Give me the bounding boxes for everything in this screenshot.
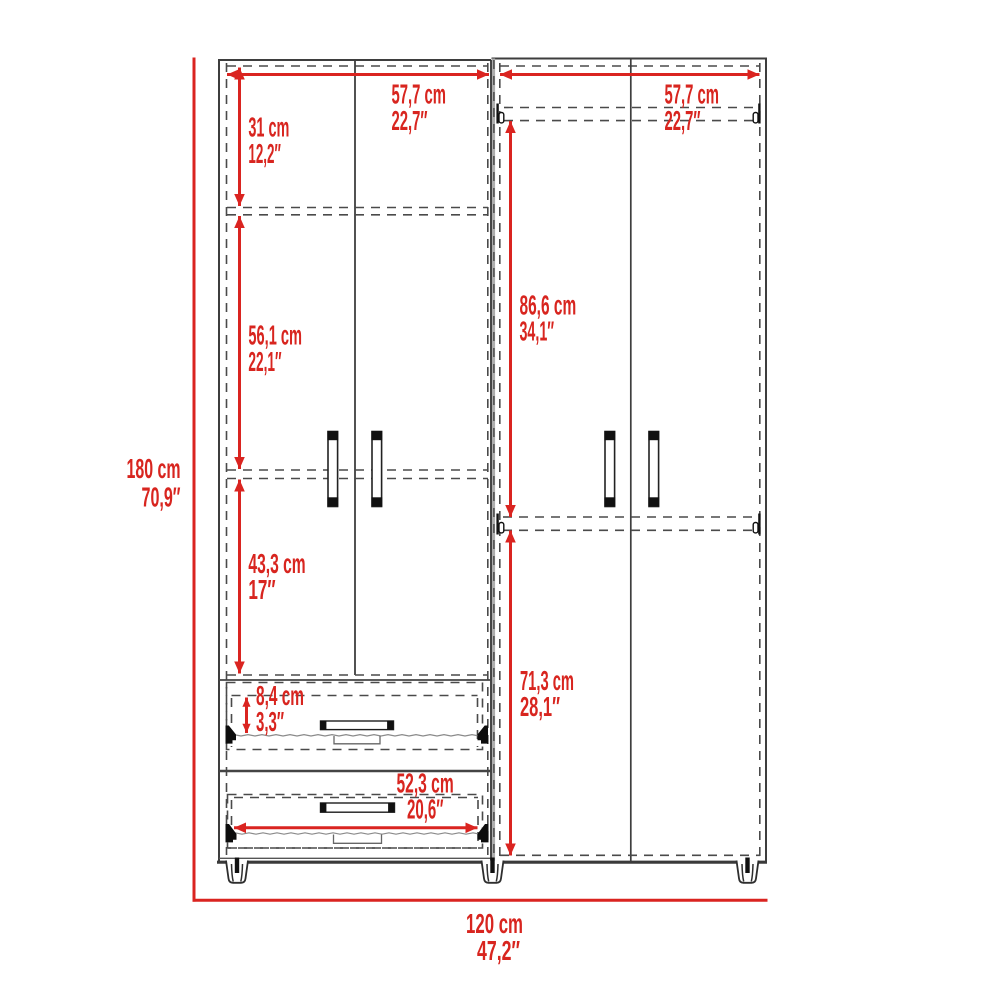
svg-text:17″: 17″ (248, 574, 275, 605)
svg-text:34,1″: 34,1″ (520, 315, 555, 346)
svg-text:28,1″: 28,1″ (520, 691, 560, 722)
svg-text:70,9″: 70,9″ (142, 482, 181, 513)
svg-text:20,6″: 20,6″ (407, 794, 444, 825)
svg-text:22,7″: 22,7″ (392, 105, 428, 136)
svg-text:3,3″: 3,3″ (256, 706, 284, 737)
svg-text:22,7″: 22,7″ (665, 105, 701, 136)
svg-text:22,1″: 22,1″ (248, 346, 281, 377)
svg-text:47,2″: 47,2″ (477, 935, 520, 966)
svg-text:12,2″: 12,2″ (248, 138, 281, 169)
svg-text:180 cm: 180 cm (127, 453, 181, 484)
